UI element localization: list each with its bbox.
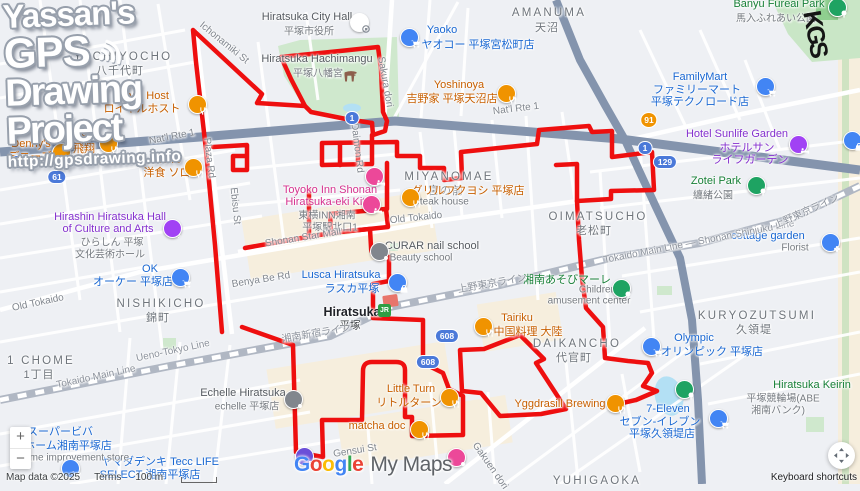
my-maps-label: My Maps (370, 453, 452, 476)
gps-track-stroke[interactable] (281, 47, 387, 135)
terms-link[interactable]: Terms (94, 472, 121, 483)
google-logo[interactable]: Google (294, 453, 363, 476)
map-data-attribution: Map data ©2025 (6, 472, 80, 483)
logo-line-2: GPS (3, 30, 90, 75)
gps-track-stroke[interactable] (556, 164, 577, 201)
mymaps-screenshot: { "watermark":{"line1":"Yassan's","line2… (0, 0, 860, 484)
scale-label: 100 m (135, 472, 163, 483)
pan-control[interactable] (828, 442, 855, 469)
gps-drawing-logo: Yassan's GPS Drawing Project http://gpsd… (2, 0, 182, 170)
scale-bar (181, 477, 217, 483)
zoom-control[interactable]: + − (10, 427, 31, 469)
zoom-in-button[interactable]: + (10, 427, 31, 448)
jr-logo: JR (378, 304, 391, 317)
logo-line-4: Project (6, 107, 181, 151)
keyboard-shortcuts-button[interactable]: Keyboard shortcuts (771, 472, 857, 483)
gps-track-stroke[interactable] (193, 30, 372, 332)
gps-track-stroke[interactable] (460, 335, 566, 416)
attribution-bar: Map data ©2025 Terms 100 m (6, 472, 217, 483)
logo-line-3: Drawing (5, 69, 180, 113)
zoom-out-button[interactable]: − (10, 449, 31, 470)
wifi-icon (90, 31, 133, 70)
gps-track-stroke[interactable] (242, 229, 463, 457)
pan-arrows-icon (833, 447, 850, 464)
gps-track-stroke[interactable] (213, 145, 247, 170)
google-my-maps-watermark[interactable]: GoogleMy Maps (294, 453, 452, 477)
